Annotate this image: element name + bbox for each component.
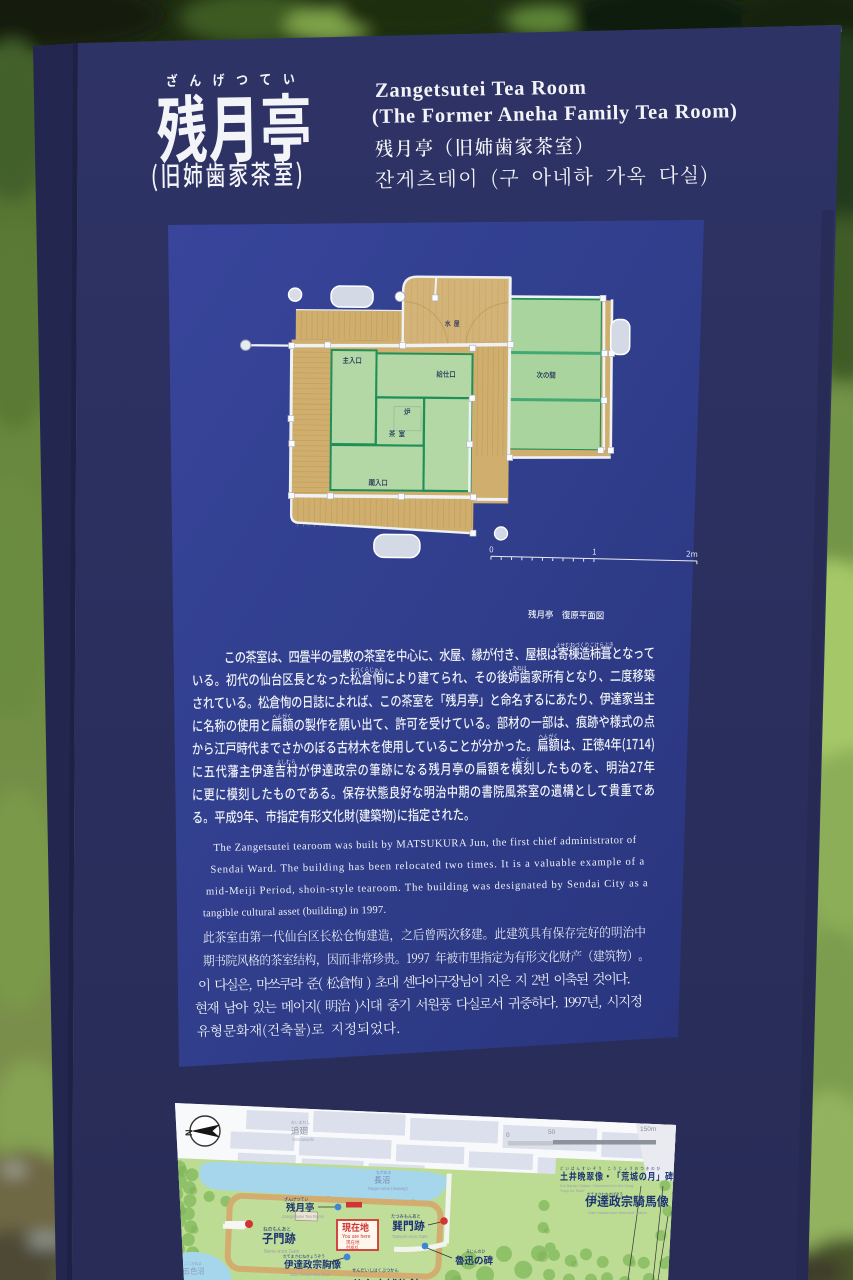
svg-text:150m: 150m: [640, 1126, 656, 1133]
svg-text:You are here: You are here: [342, 1234, 371, 1240]
svg-text:Neno-mon Gate: Neno-mon Gate: [264, 1249, 300, 1255]
svg-text:0: 0: [506, 1132, 510, 1139]
svg-text:50: 50: [548, 1129, 556, 1136]
svg-text:Zangetsutei Tea Room: Zangetsutei Tea Room: [375, 77, 586, 102]
svg-text:Naga-numa (Swamp): Naga-numa (Swamp): [368, 1186, 408, 1191]
svg-text:Oimawashi: Oimawashi: [292, 1137, 314, 1142]
svg-text:N: N: [184, 1130, 194, 1137]
svg-text:“Kojo no Tsuki”: “Kojo no Tsuki”: [560, 1189, 586, 1193]
svg-text:Date Masamune Bust: Date Masamune Bust: [290, 1272, 331, 1277]
svg-text:Zangetsutei Tea Room: Zangetsutei Tea Room: [282, 1214, 325, 1219]
svg-text:Date Masamune Mounted Statue: Date Masamune Mounted Statue: [588, 1210, 647, 1215]
svg-text:Doi Bansui Statue / Monument f: Doi Bansui Statue / Monument for the Son…: [560, 1184, 633, 1188]
svg-text:Tatsumi-mon Gate: Tatsumi-mon Gate: [392, 1234, 428, 1239]
